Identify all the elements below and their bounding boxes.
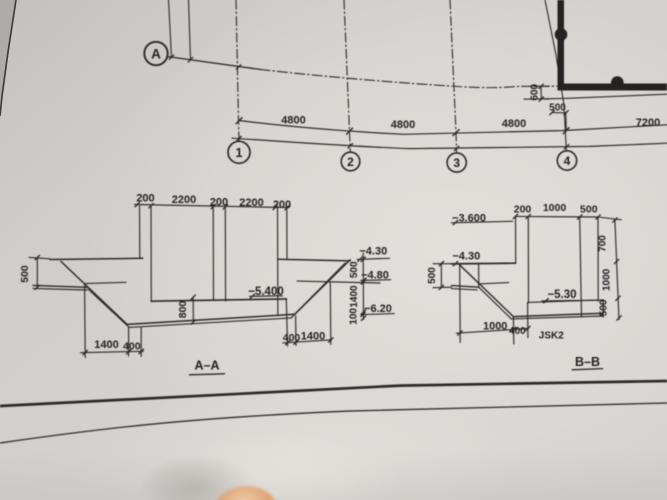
- svg-text:400: 400: [509, 326, 526, 337]
- svg-text:1000: 1000: [543, 202, 567, 214]
- svg-text:−4.30: −4.30: [359, 245, 387, 257]
- svg-text:200: 200: [273, 199, 291, 211]
- svg-text:400: 400: [283, 332, 301, 344]
- svg-text:2: 2: [347, 155, 354, 169]
- svg-text:400: 400: [123, 341, 141, 353]
- svg-text:500: 500: [349, 261, 360, 278]
- svg-text:1400: 1400: [349, 285, 360, 308]
- svg-text:−5.400: −5.400: [248, 286, 284, 298]
- svg-text:1000: 1000: [602, 268, 613, 291]
- svg-text:600: 600: [529, 84, 540, 101]
- svg-text:2200: 2200: [172, 194, 196, 206]
- svg-text:500: 500: [19, 265, 31, 283]
- svg-text:500: 500: [598, 299, 609, 316]
- svg-text:7200: 7200: [636, 117, 660, 129]
- svg-text:B–B: B–B: [575, 355, 600, 369]
- svg-text:4800: 4800: [281, 115, 305, 127]
- svg-text:800: 800: [177, 301, 189, 319]
- svg-text:4800: 4800: [502, 118, 526, 130]
- svg-text:500: 500: [549, 102, 566, 113]
- svg-text:1: 1: [236, 146, 243, 160]
- svg-text:−5.30: −5.30: [547, 289, 576, 301]
- svg-text:−4.30: −4.30: [452, 251, 480, 263]
- svg-text:200: 200: [136, 193, 154, 205]
- svg-text:JSK2: JSK2: [539, 330, 564, 341]
- svg-text:1400: 1400: [301, 331, 325, 343]
- svg-text:200: 200: [210, 197, 228, 209]
- svg-text:3: 3: [453, 156, 460, 170]
- svg-text:2200: 2200: [239, 197, 263, 209]
- svg-text:4800: 4800: [391, 119, 415, 131]
- svg-text:−4.80: −4.80: [361, 269, 389, 281]
- svg-text:−3.600: −3.600: [452, 213, 486, 225]
- svg-text:500: 500: [580, 204, 598, 216]
- svg-text:4: 4: [564, 154, 571, 168]
- svg-text:1000: 1000: [483, 320, 507, 332]
- svg-text:−6.20: −6.20: [364, 303, 392, 315]
- svg-text:A–A: A–A: [194, 359, 219, 373]
- svg-text:200: 200: [514, 204, 532, 216]
- svg-text:500: 500: [427, 267, 438, 284]
- svg-text:700: 700: [597, 235, 608, 252]
- svg-text:A: A: [151, 47, 161, 62]
- svg-text:1400: 1400: [94, 339, 118, 351]
- svg-text:100: 100: [349, 308, 360, 325]
